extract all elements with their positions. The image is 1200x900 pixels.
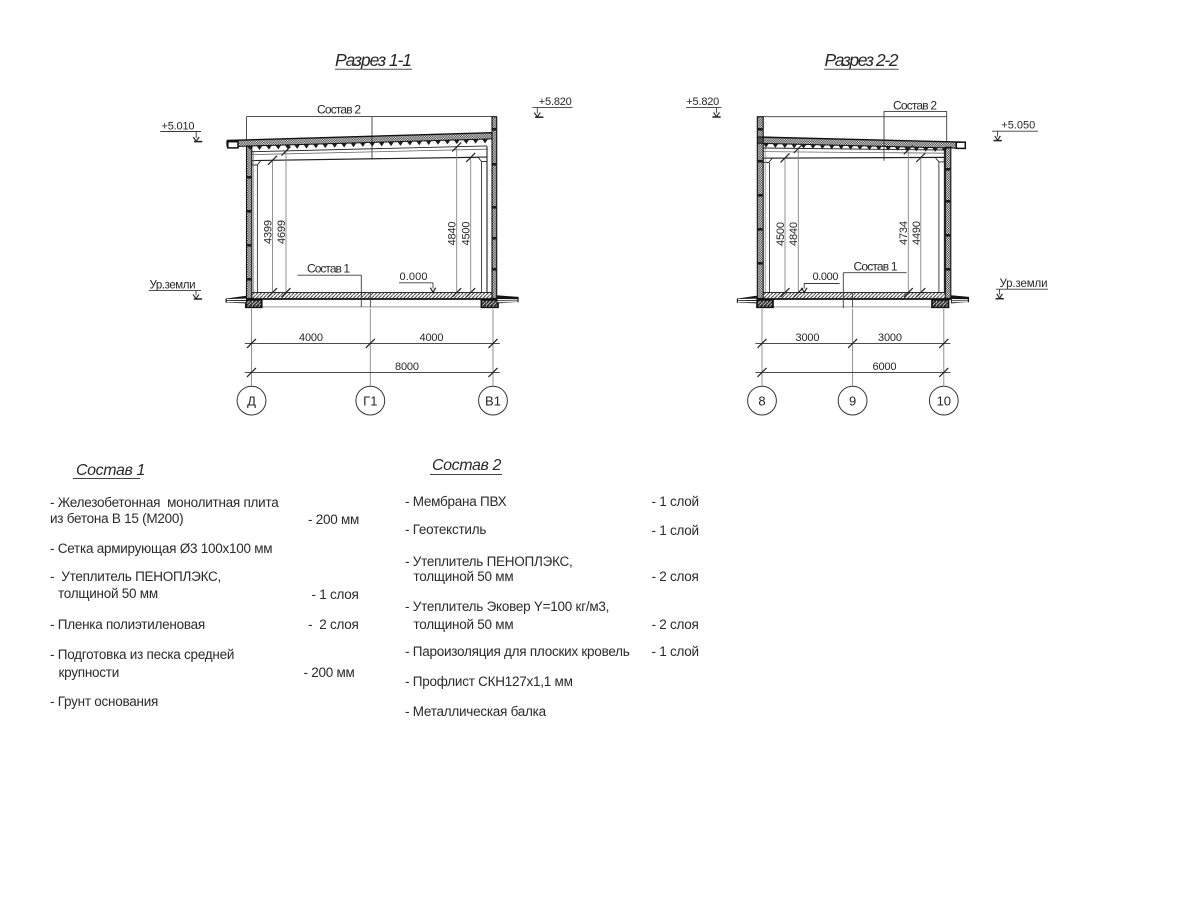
svg-text:4840: 4840 [447, 222, 459, 246]
svg-text:Состав 2: Состав 2 [317, 102, 361, 116]
svg-text:6000: 6000 [873, 361, 897, 373]
svg-text:4000: 4000 [299, 332, 323, 344]
svg-text:8000: 8000 [395, 361, 419, 373]
svg-text:Состав 1: Состав 1 [307, 261, 350, 275]
svg-text:4399: 4399 [262, 220, 274, 244]
svg-text:4840: 4840 [788, 222, 800, 246]
svg-text:8: 8 [758, 393, 765, 408]
svg-text:10: 10 [937, 393, 951, 408]
svg-text:Г1: Г1 [363, 393, 377, 408]
svg-text:+5.010: +5.010 [162, 121, 195, 133]
svg-text:Д: Д [247, 393, 256, 408]
svg-text:4500: 4500 [461, 222, 473, 246]
svg-text:4734: 4734 [898, 221, 910, 245]
svg-text:0.000: 0.000 [400, 271, 428, 283]
svg-text:Состав 1: Состав 1 [854, 259, 898, 273]
svg-text:0.000: 0.000 [813, 271, 839, 283]
svg-text:Ур.земли: Ур.земли [150, 279, 196, 291]
svg-text:4490: 4490 [911, 221, 923, 245]
svg-text:4000: 4000 [420, 332, 444, 344]
svg-text:+5.050: +5.050 [1001, 119, 1035, 131]
svg-text:3000: 3000 [796, 332, 820, 344]
svg-text:Ур.земли: Ур.земли [1000, 278, 1048, 290]
svg-text:Разрез 1-1: Разрез 1-1 [335, 50, 412, 70]
svg-text:3000: 3000 [878, 332, 902, 344]
svg-text:В1: В1 [485, 393, 501, 408]
svg-text:Состав 2: Состав 2 [893, 98, 937, 112]
svg-text:4500: 4500 [775, 222, 787, 246]
svg-text:4699: 4699 [276, 220, 288, 244]
svg-text:+5.820: +5.820 [686, 96, 719, 108]
svg-text:+5.820: +5.820 [539, 96, 572, 108]
svg-text:Разрез 2-2: Разрез 2-2 [825, 50, 899, 70]
svg-text:9: 9 [849, 393, 856, 408]
